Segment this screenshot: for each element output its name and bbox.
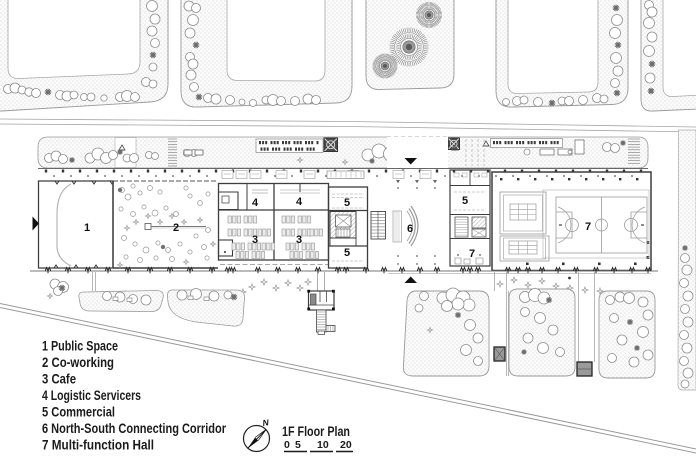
svg-text:4 Logistic Servicers: 4 Logistic Servicers bbox=[42, 388, 141, 403]
svg-text:0: 0 bbox=[284, 439, 290, 451]
svg-text:5: 5 bbox=[344, 197, 350, 209]
svg-text:2: 2 bbox=[173, 222, 179, 234]
svg-text:7 Multi-function Hall: 7 Multi-function Hall bbox=[42, 438, 154, 453]
svg-text:5: 5 bbox=[462, 195, 468, 207]
svg-text:4: 4 bbox=[296, 196, 303, 208]
svg-text:1 Public Space: 1 Public Space bbox=[42, 339, 118, 354]
svg-text:3: 3 bbox=[296, 234, 302, 246]
svg-text:10: 10 bbox=[317, 439, 329, 451]
svg-text:7: 7 bbox=[469, 248, 475, 260]
svg-text:3 Cafe: 3 Cafe bbox=[42, 372, 76, 387]
svg-text:5: 5 bbox=[344, 247, 350, 259]
svg-text:20: 20 bbox=[340, 439, 352, 451]
svg-text:1: 1 bbox=[84, 222, 90, 234]
svg-text:5 Commercial: 5 Commercial bbox=[42, 405, 115, 420]
svg-text:6: 6 bbox=[407, 223, 413, 235]
svg-text:6 North-South Connecting Corri: 6 North-South Connecting Corridor bbox=[42, 421, 227, 436]
svg-text:5: 5 bbox=[295, 439, 301, 451]
svg-text:2 Co-working: 2 Co-working bbox=[42, 355, 114, 370]
svg-text:3: 3 bbox=[252, 234, 258, 246]
svg-text:7: 7 bbox=[585, 221, 591, 233]
svg-text:1F Floor Plan: 1F Floor Plan bbox=[282, 424, 350, 439]
svg-text:4: 4 bbox=[252, 197, 259, 209]
